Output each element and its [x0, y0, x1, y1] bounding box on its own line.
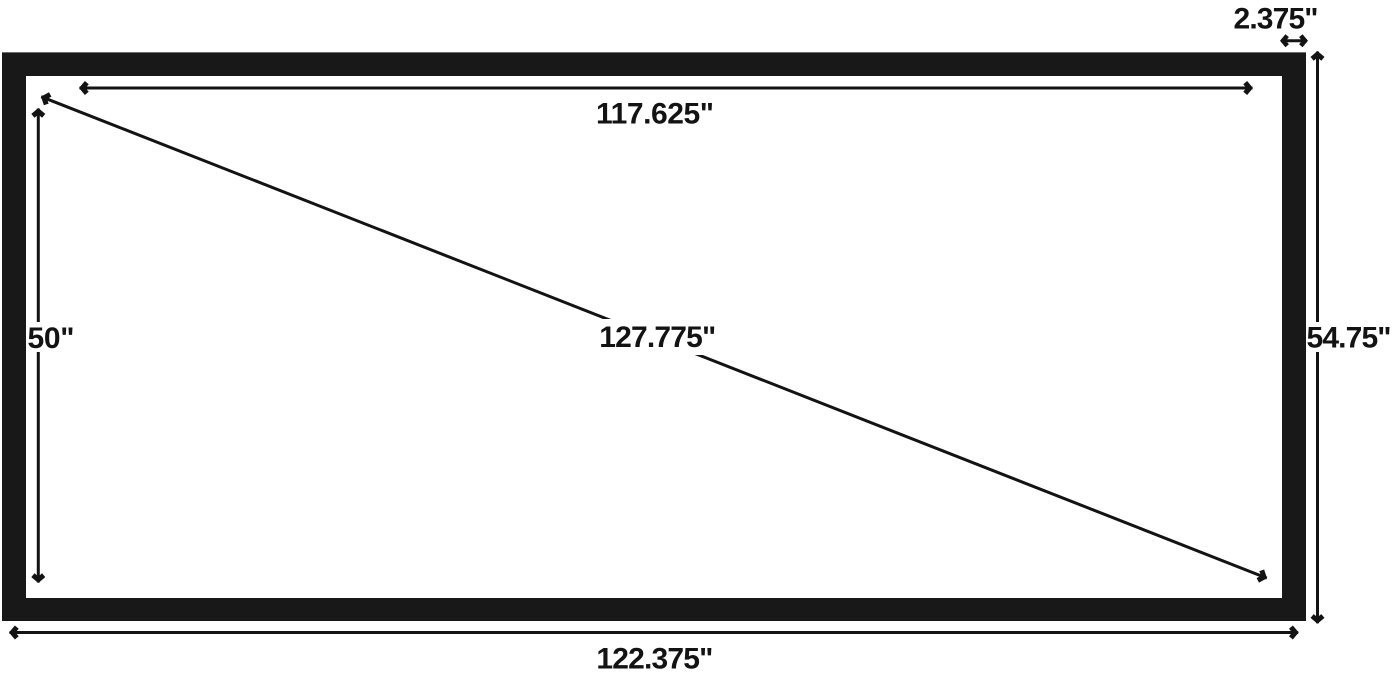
svg-text:122.375": 122.375" [596, 643, 713, 674]
svg-text:2.375": 2.375" [1234, 3, 1319, 36]
svg-text:54.75": 54.75" [1307, 322, 1392, 355]
svg-text:127.775": 127.775" [599, 321, 716, 354]
svg-text:117.625": 117.625" [596, 98, 714, 131]
svg-text:50": 50" [28, 322, 75, 355]
